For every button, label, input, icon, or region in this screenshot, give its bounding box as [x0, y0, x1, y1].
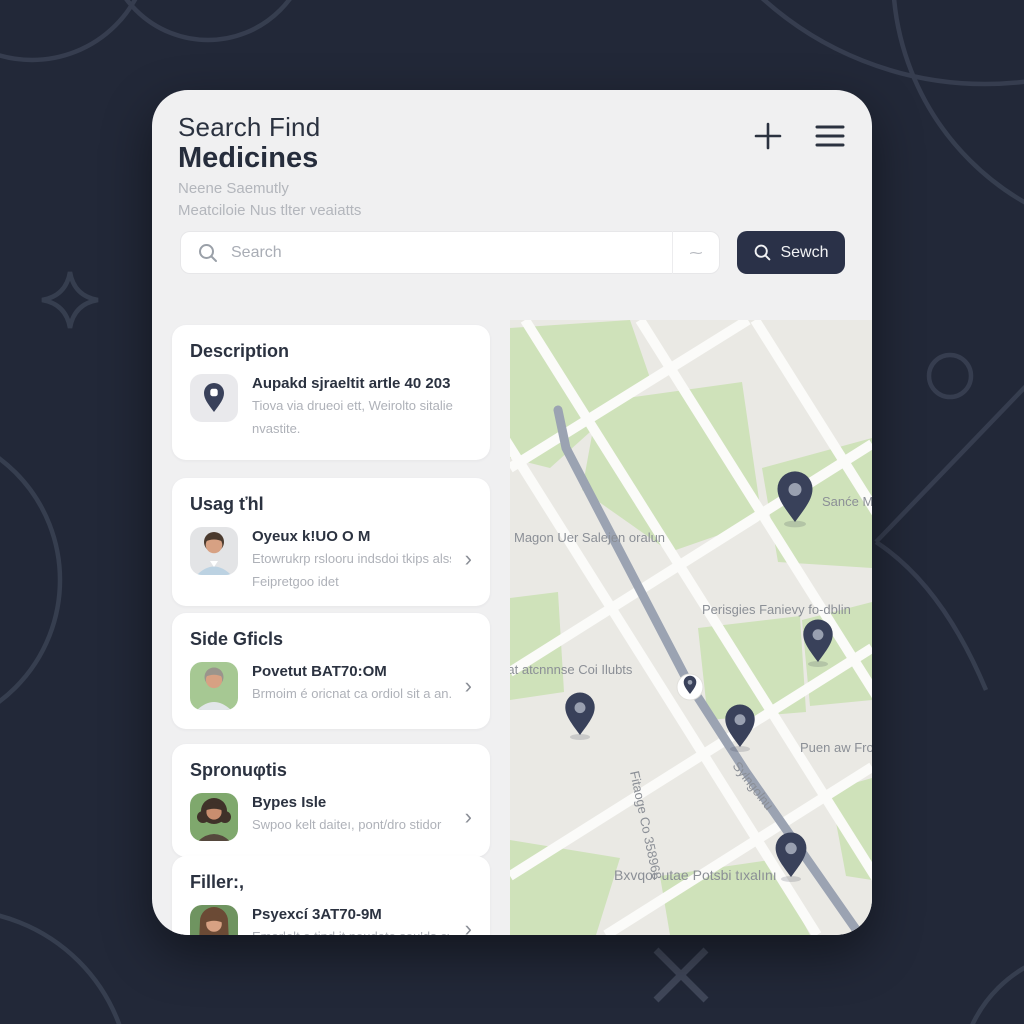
chevron-right-icon[interactable]: › [465, 662, 472, 710]
avatar [190, 662, 238, 710]
add-button[interactable] [748, 116, 788, 156]
avatar [190, 793, 238, 841]
card-symptoms[interactable]: Spronuφtis Bypes Isle Swpoo kelt daiteı,… [172, 744, 490, 857]
item-title: Aupakd sjraeltit artle 40 203 [252, 375, 472, 392]
map-label: Perisgies Fanievy fo-dblin [702, 602, 851, 617]
decor-circle-small [929, 355, 971, 397]
chevron-right-icon[interactable]: › [465, 535, 472, 583]
card-section-title: Filler:, [190, 872, 472, 893]
item-title: Povetut BAT70:OM [252, 663, 451, 680]
search-button-label: Sewch [780, 244, 828, 262]
app-panel: Search Find Medicines Neene Saemutly Mea… [152, 90, 872, 935]
page-subtitle-1: Neene Saemutly [178, 180, 289, 197]
chevron-right-icon[interactable]: › [465, 905, 472, 935]
avatar [190, 905, 238, 935]
search-icon [753, 243, 772, 262]
item-title: Bypes Isle [252, 794, 451, 811]
item-line1: Brmoim é oricnat ca ordiol sit a an... [252, 685, 451, 703]
card-side-effects[interactable]: Side Gficls Povetut BAT70:OM Brmoim é or… [172, 613, 490, 729]
map-view[interactable]: Sanće Mo Magon Uer Salejen oralun Perisg… [510, 320, 872, 935]
item-line1: Swpoo kelt daiteı, pont/dro stidor [252, 816, 451, 834]
map-label: Nat atcnnnse Coi Ilubts [510, 662, 633, 677]
hamburger-icon [815, 124, 845, 148]
page-subtitle-2: Meatciloie Nus tlter veaiatts [178, 202, 361, 219]
card-section-title: Side Gficls [190, 629, 472, 650]
card-description[interactable]: Description Aupakd sjraeltit artle 40 20… [172, 325, 490, 460]
chevron-right-icon[interactable]: › [465, 793, 472, 841]
item-line1: Tiova via drueoi ett, Weirolto sitalie [252, 397, 472, 415]
card-filter[interactable]: Filler:, Psyexcí 3AT70-9M Emarlelt o tin… [172, 856, 490, 935]
decor-circle [106, 0, 310, 40]
decor-circle [0, 0, 150, 60]
map-label: Puen aw Froodts [800, 740, 872, 755]
location-pin-icon [190, 374, 238, 422]
page-title-line2: Medicines [178, 142, 318, 175]
map-label: Bxvqor utae Potsbi tıxalını [614, 867, 777, 883]
item-title: Psyexcí 3AT70-9M [252, 906, 451, 923]
page-title-line1: Search Find [178, 112, 320, 143]
item-line1: Emarlelt o tind it noudate sou'ds evorip [252, 928, 451, 935]
item-title: Oyeux k!UO O M [252, 528, 451, 545]
decor-arc [876, 542, 986, 690]
plus-icon [753, 121, 783, 151]
item-line2: Feipretgoo idet [252, 573, 451, 591]
map-label: Magon Uer Salejen oralun [514, 530, 665, 545]
search-placeholder: Search [231, 244, 672, 262]
search-input[interactable]: Search ⁓ [180, 231, 720, 274]
card-usage[interactable]: Usag ťhl Oyeux k!UO O M Etowrukrp rsloor… [172, 478, 490, 606]
card-section-title: Description [190, 341, 472, 362]
decor-sparkle [42, 272, 98, 328]
map-pin[interactable] [565, 692, 594, 735]
item-line2: nvastite. [252, 420, 472, 438]
decor-circle [0, 428, 60, 732]
card-section-title: Spronuφtis [190, 760, 472, 781]
input-hint: ⁓ [673, 245, 719, 261]
decor-line [876, 386, 1024, 542]
decor-circle [0, 910, 130, 1024]
map-road-badge[interactable] [677, 674, 703, 700]
menu-button[interactable] [810, 116, 850, 156]
search-icon [197, 242, 219, 264]
map-label: Sanće Mo [822, 494, 872, 509]
avatar [190, 527, 238, 575]
item-line1: Etowrukrp rslooru indsdoi tkips alsstjts [252, 550, 451, 568]
search-button[interactable]: Sewch [737, 231, 845, 274]
decor-circle [960, 950, 1024, 1024]
card-section-title: Usag ťhl [190, 494, 472, 515]
decor-circle [893, 0, 1024, 237]
decor-circle [653, 0, 1024, 84]
